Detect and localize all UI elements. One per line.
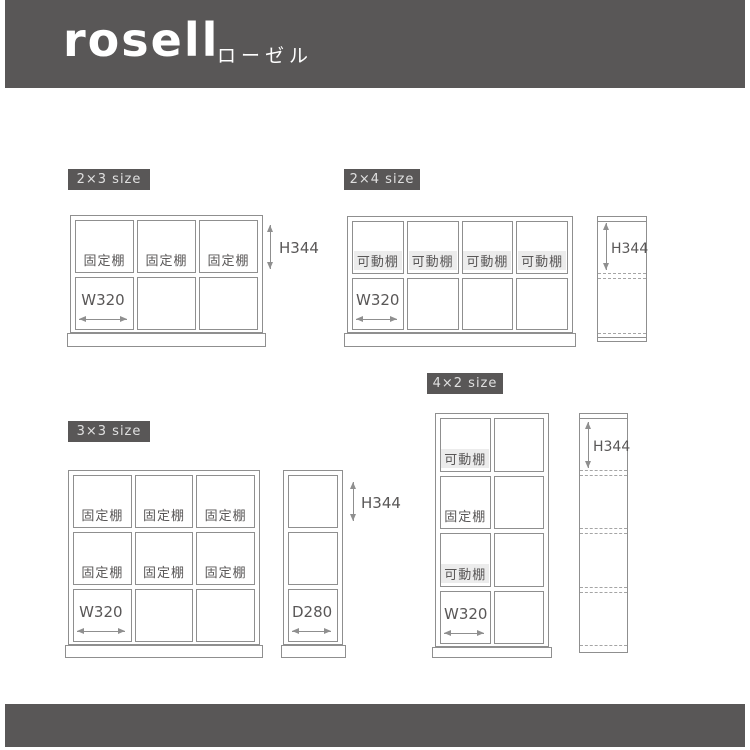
shelf-4x2-grid: 可動棚 固定棚 可動棚 W320 <box>440 418 544 644</box>
shelf-cell <box>494 533 545 587</box>
shelf-cell: W320 <box>352 278 404 331</box>
shelf-cell <box>199 277 258 330</box>
width-dimension-label: W320 <box>444 605 484 623</box>
shelf-4x2-side: H344 <box>579 413 628 653</box>
shelf-3x3-base <box>65 645 263 658</box>
depth-dimension: D280 <box>292 602 331 632</box>
shelf-3x3-grid: 固定棚 固定棚 固定棚 固定棚 固定棚 固定棚 W320 <box>73 475 255 642</box>
width-dimension-label: W320 <box>77 603 125 621</box>
shelf-cell: 固定棚 <box>196 532 255 585</box>
shelf-cell: 可動棚 <box>440 533 491 587</box>
shelf-3x3-side-base <box>281 645 346 658</box>
shelf-2x4-front: 可動棚 可動棚 可動棚 可動棚 W320 <box>347 216 573 333</box>
shelf-cell: 固定棚 <box>137 220 196 273</box>
movable-shelf-line <box>598 278 646 279</box>
side-cell: D280 <box>288 589 338 642</box>
top-banner: rosell ローゼル <box>5 0 745 88</box>
height-dimension-label: H344 <box>279 239 319 257</box>
shelf-cell: 固定棚 <box>199 220 258 273</box>
shelf-type-label: 固定棚 <box>205 505 247 524</box>
product-size-diagram-page: rosell ローゼル 2×3 size 固定棚 固定棚 固定棚 W320 <box>0 0 750 750</box>
shelf-cell: 可動棚 <box>440 418 491 472</box>
size-badge-4x2: 4×2 size <box>427 373 503 394</box>
shelf-type-label: 可動棚 <box>441 449 489 468</box>
width-dimension-arrow <box>77 631 125 632</box>
base-line <box>598 337 646 338</box>
movable-shelf-line <box>580 587 627 588</box>
shelf-type-label: 固定棚 <box>444 506 486 525</box>
shelf-cell: 固定棚 <box>75 220 134 273</box>
shelf-type-label: 固定棚 <box>145 250 187 269</box>
width-dimension-label: W320 <box>79 291 127 309</box>
size-badge-2x4: 2×4 size <box>344 169 420 190</box>
shelf-type-label: 固定棚 <box>207 250 249 269</box>
shelf-4x2-front: 可動棚 固定棚 可動棚 W320 <box>435 413 549 647</box>
width-dimension-label: W320 <box>356 291 397 309</box>
brand-kana: ローゼル <box>217 41 313 68</box>
width-dimension: W320 <box>79 290 127 320</box>
shelf-type-label: 固定棚 <box>81 562 123 581</box>
side-cell <box>288 532 338 585</box>
shelf-2x4-grid: 可動棚 可動棚 可動棚 可動棚 W320 <box>352 221 568 330</box>
size-badge-2x3: 2×3 size <box>68 169 150 190</box>
shelf-cell <box>137 277 196 330</box>
shelf-2x3-base <box>67 333 266 347</box>
shelf-cell <box>494 418 545 472</box>
shelf-3x3-front: 固定棚 固定棚 固定棚 固定棚 固定棚 固定棚 W320 <box>68 470 260 645</box>
shelf-cell <box>407 278 459 331</box>
shelf-cell <box>196 589 255 642</box>
shelf-3x3-side-grid: D280 <box>288 475 338 642</box>
top-plate-line <box>580 418 627 419</box>
top-plate-line <box>598 221 646 222</box>
bottom-banner <box>5 704 745 747</box>
movable-shelf-line <box>580 592 627 593</box>
shelf-type-label: 可動棚 <box>518 251 566 270</box>
height-dimension-arrow <box>588 422 589 468</box>
movable-shelf-line <box>598 333 646 334</box>
width-dimension: W320 <box>444 604 484 634</box>
height-dimension-arrow <box>270 225 271 269</box>
movable-shelf-line <box>580 475 627 476</box>
shelf-2x4-base <box>344 333 576 347</box>
shelf-cell: 可動棚 <box>407 221 459 274</box>
width-dimension-arrow <box>79 319 127 320</box>
shelf-cell: 固定棚 <box>135 475 194 528</box>
shelf-cell <box>462 278 514 331</box>
shelf-cell: 可動棚 <box>516 221 568 274</box>
shelf-2x3-grid: 固定棚 固定棚 固定棚 W320 <box>75 220 258 330</box>
fixed-shelf-line <box>580 528 627 529</box>
movable-shelf-line <box>580 470 627 471</box>
depth-dimension-label: D280 <box>292 603 331 621</box>
shelf-cell: W320 <box>75 277 134 330</box>
fixed-shelf-line <box>580 533 627 534</box>
shelf-cell: 固定棚 <box>440 476 491 530</box>
shelf-cell: W320 <box>440 591 491 645</box>
shelf-3x3-side: D280 <box>283 470 343 645</box>
shelf-cell: 固定棚 <box>73 475 132 528</box>
shelf-cell: 可動棚 <box>352 221 404 274</box>
shelf-cell <box>494 591 545 645</box>
shelf-type-label: 可動棚 <box>463 251 511 270</box>
shelf-type-label: 固定棚 <box>143 505 185 524</box>
height-dimension-label: H344 <box>611 241 648 257</box>
shelf-cell: 可動棚 <box>462 221 514 274</box>
shelf-type-label: 可動棚 <box>354 251 402 270</box>
shelf-cell: 固定棚 <box>73 532 132 585</box>
width-dimension-arrow <box>444 633 484 634</box>
brand-logo: rosell <box>63 13 219 67</box>
width-dimension-arrow <box>356 319 397 320</box>
shelf-2x4-side: H344 <box>597 216 647 342</box>
shelf-4x2-base <box>432 647 552 658</box>
shelf-type-label: 可動棚 <box>441 564 489 583</box>
shelf-type-label: 固定棚 <box>143 562 185 581</box>
movable-shelf-line <box>598 273 646 274</box>
shelf-type-label: 固定棚 <box>205 562 247 581</box>
shelf-cell: W320 <box>73 589 132 642</box>
shelf-cell: 固定棚 <box>135 532 194 585</box>
height-dimension-arrow <box>606 223 607 270</box>
size-badge-3x3: 3×3 size <box>68 421 150 442</box>
side-cell <box>288 475 338 528</box>
shelf-2x3-front: 固定棚 固定棚 固定棚 W320 <box>70 215 263 333</box>
shelf-cell <box>135 589 194 642</box>
shelf-cell: 固定棚 <box>196 475 255 528</box>
depth-dimension-arrow <box>292 631 331 632</box>
height-dimension-arrow <box>353 482 354 521</box>
base-line <box>580 645 627 646</box>
shelf-type-label: 固定棚 <box>83 250 125 269</box>
shelf-type-label: 可動棚 <box>409 251 457 270</box>
shelf-type-label: 固定棚 <box>81 505 123 524</box>
shelf-cell <box>494 476 545 530</box>
shelf-cell <box>516 278 568 331</box>
height-dimension-label: H344 <box>361 494 401 512</box>
width-dimension: W320 <box>356 290 397 320</box>
height-dimension-label: H344 <box>593 439 630 455</box>
width-dimension: W320 <box>77 602 125 632</box>
